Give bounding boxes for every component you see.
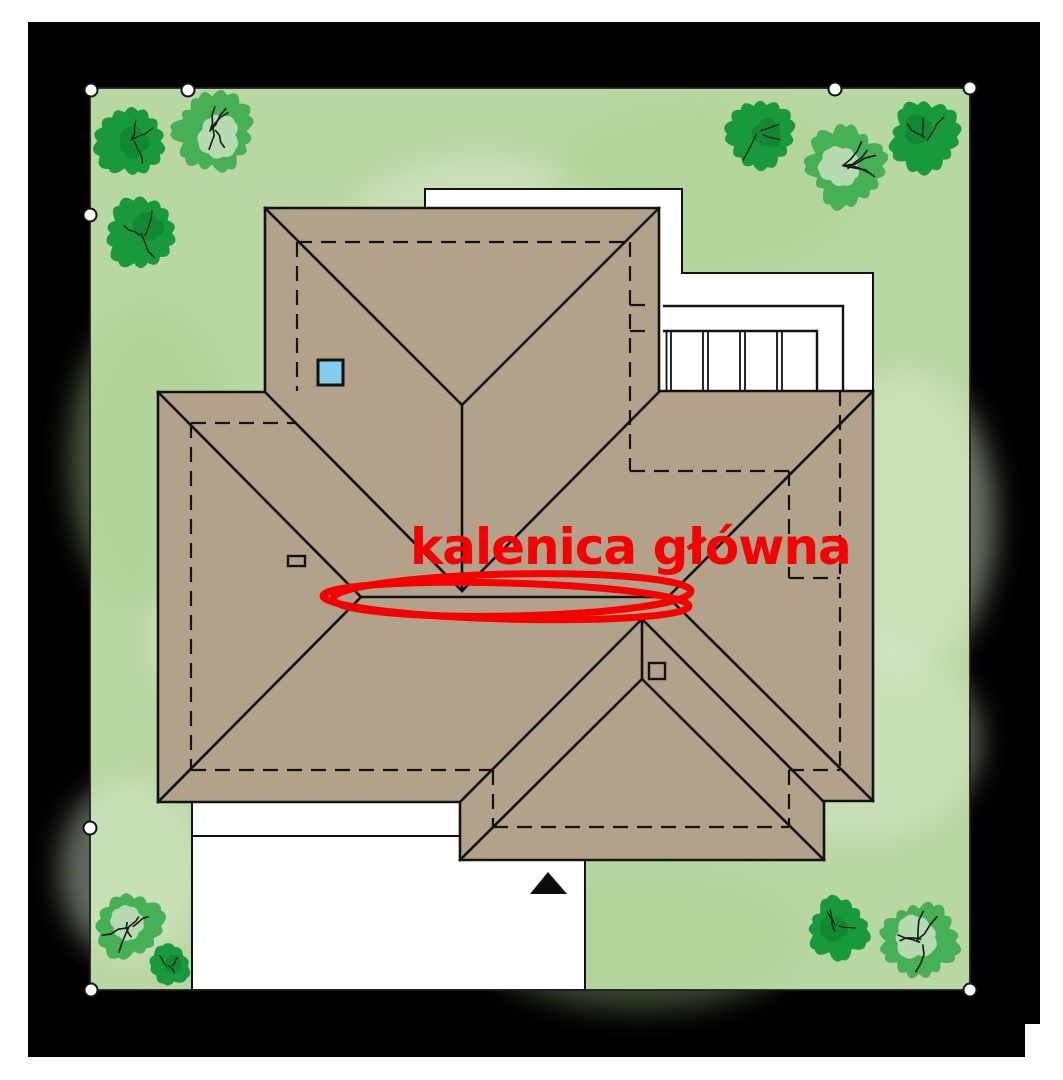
survey-marker xyxy=(182,84,195,97)
survey-marker xyxy=(84,209,97,222)
survey-marker xyxy=(964,82,977,95)
survey-marker xyxy=(964,984,977,997)
roof-plan-drawing: kalenica główna xyxy=(0,0,1063,1080)
skylight-window xyxy=(318,360,343,385)
survey-marker xyxy=(84,822,97,835)
annotation-kalenica: kalenica główna xyxy=(410,518,851,576)
survey-marker xyxy=(85,84,98,97)
site-plan-canvas: kalenica główna xyxy=(0,0,1063,1080)
chimney xyxy=(649,663,665,679)
frame-notch xyxy=(1025,1024,1063,1080)
survey-marker xyxy=(829,83,842,96)
survey-marker xyxy=(85,984,98,997)
roof-vent xyxy=(288,556,305,566)
